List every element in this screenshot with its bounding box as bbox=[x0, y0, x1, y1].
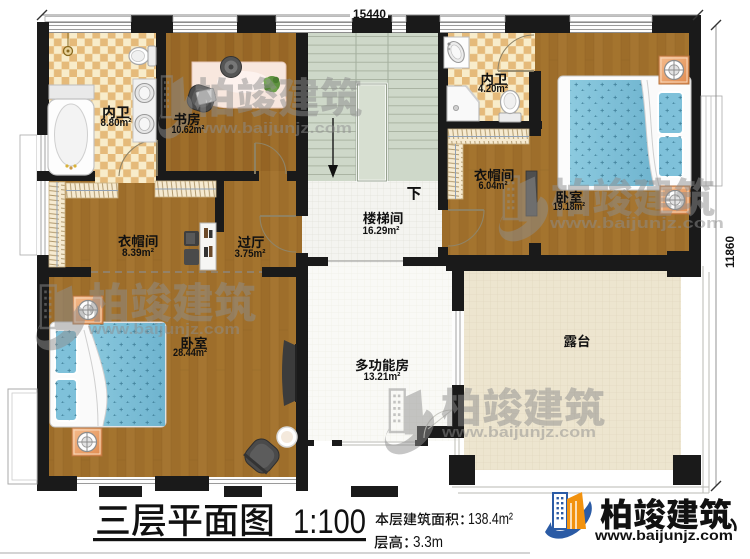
svg-text:www.baijunjz.com: www.baijunjz.com bbox=[441, 424, 596, 441]
svg-text:www.baijunjz.com: www.baijunjz.com bbox=[594, 528, 733, 543]
svg-text:www.baijunjz.com: www.baijunjz.com bbox=[549, 215, 724, 232]
svg-text:28.44m²: 28.44m² bbox=[173, 347, 207, 359]
svg-text:8.80m²: 8.80m² bbox=[101, 117, 132, 129]
svg-text:www.baijunjz.com: www.baijunjz.com bbox=[194, 120, 352, 137]
svg-text:3.75m²: 3.75m² bbox=[235, 248, 266, 260]
svg-text:138.4m²: 138.4m² bbox=[468, 511, 514, 528]
svg-text:19.18m²: 19.18m² bbox=[553, 201, 585, 213]
svg-text:16.29m²: 16.29m² bbox=[363, 225, 400, 237]
svg-text:6.04m²: 6.04m² bbox=[479, 180, 508, 192]
svg-text:1:100: 1:100 bbox=[293, 503, 366, 541]
svg-text:3.3m: 3.3m bbox=[413, 534, 443, 551]
svg-text:8.39m²: 8.39m² bbox=[122, 247, 154, 259]
svg-text:11860: 11860 bbox=[723, 236, 737, 268]
svg-text:13.21m²: 13.21m² bbox=[364, 371, 401, 383]
svg-text:15440: 15440 bbox=[353, 7, 386, 21]
svg-text:10.62m²: 10.62m² bbox=[172, 124, 205, 136]
svg-text:www.baijunjz.com: www.baijunjz.com bbox=[87, 321, 240, 338]
svg-text:4.20m²: 4.20m² bbox=[478, 83, 508, 95]
